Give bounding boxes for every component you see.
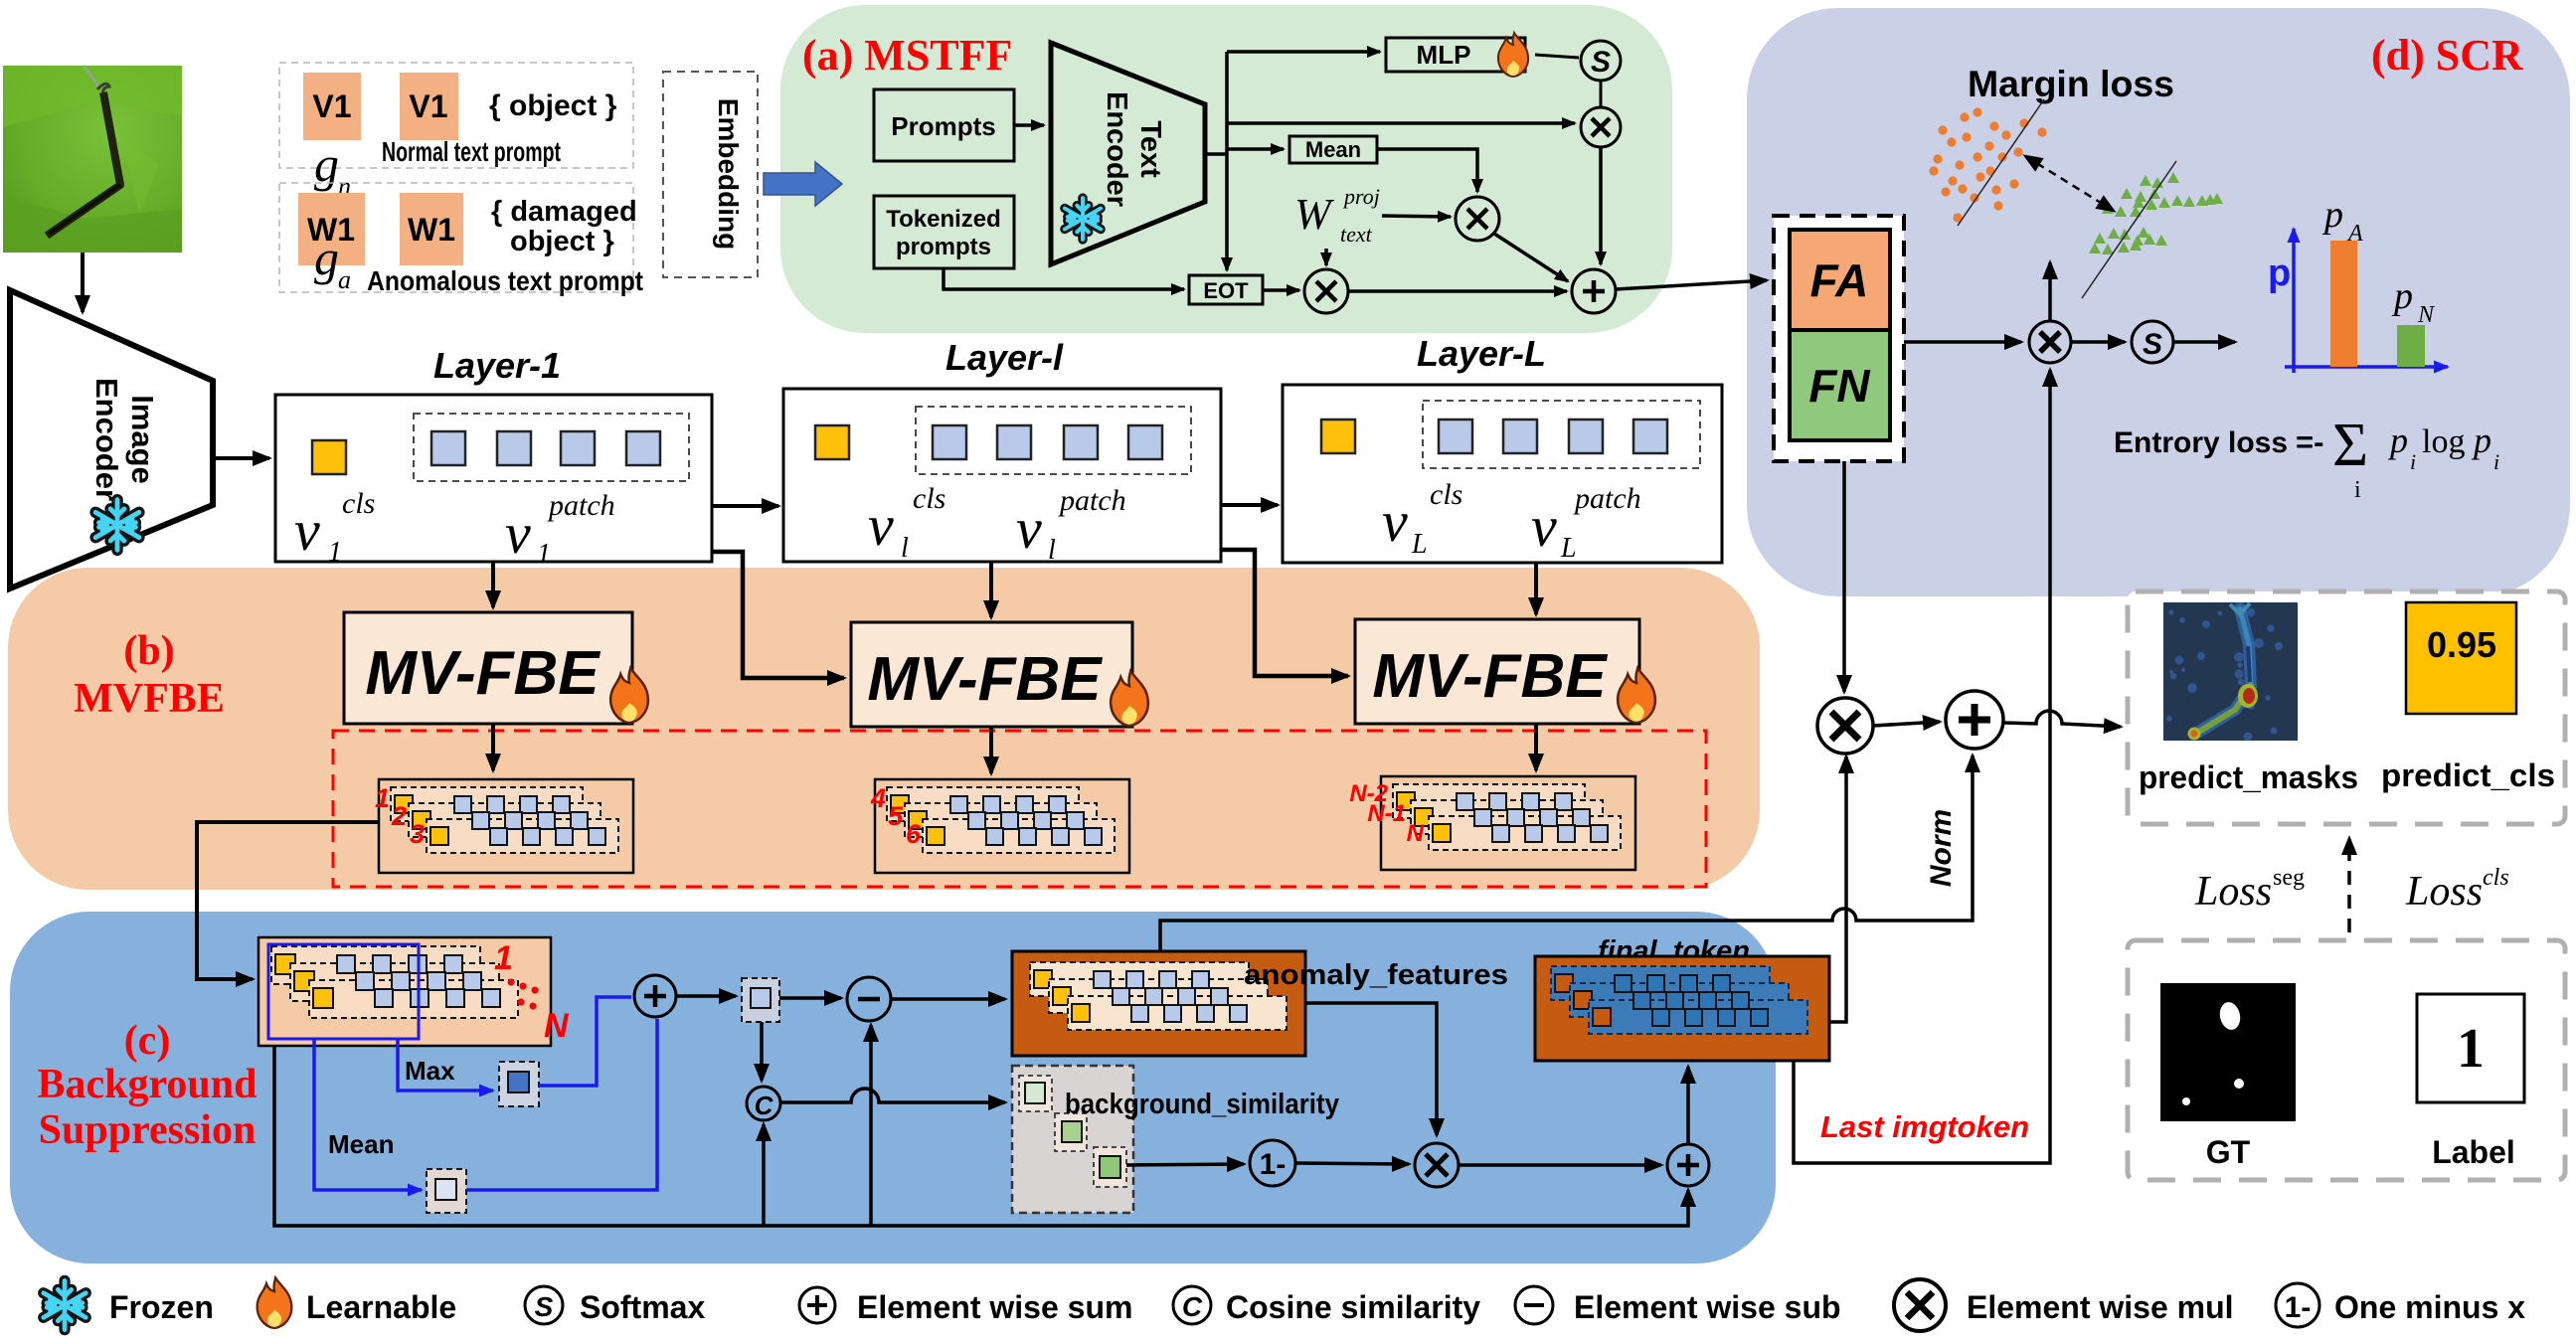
svg-text:(b): (b) <box>123 628 174 674</box>
svg-text:Layer-L: Layer-L <box>1417 333 1546 374</box>
svg-text:6: 6 <box>906 819 922 849</box>
svg-text:Σ: Σ <box>2332 412 2368 479</box>
svg-text:Anomalous text prompt: Anomalous text prompt <box>367 265 643 296</box>
svg-text:N-1: N-1 <box>1367 800 1406 827</box>
svg-text:1: 1 <box>494 939 513 977</box>
svg-text:v: v <box>1016 496 1042 561</box>
svg-text:Suppression: Suppression <box>39 1107 257 1153</box>
svg-text:Max: Max <box>405 1056 455 1086</box>
svg-text:Image: Image <box>125 395 160 484</box>
svg-text:g: g <box>314 230 339 285</box>
svg-text:patch: patch <box>547 489 615 522</box>
svg-text:cls: cls <box>913 482 945 515</box>
svg-text:p: p <box>2387 420 2408 460</box>
svg-text:anomaly_features: anomaly_features <box>1244 959 1508 991</box>
svg-text:W1: W1 <box>408 212 455 248</box>
svg-text:1: 1 <box>328 537 342 568</box>
svg-text:L: L <box>1411 529 1428 560</box>
svg-text:{ damaged: { damaged <box>491 196 637 228</box>
svg-text:patch: patch <box>1058 484 1126 517</box>
svg-text:(d) SCR: (d) SCR <box>2371 31 2524 80</box>
svg-text:background_similarity: background_similarity <box>1065 1089 1339 1120</box>
svg-text:1-: 1- <box>2285 1291 2312 1324</box>
svg-text:Encoder: Encoder <box>1101 91 1132 207</box>
svg-text:Element wise sub: Element wise sub <box>1574 1289 1841 1325</box>
svg-text:i: i <box>2410 449 2416 474</box>
svg-text:W: W <box>1294 190 1334 239</box>
svg-text:cls: cls <box>342 487 375 520</box>
svg-text:p: p <box>2268 252 2291 294</box>
svg-text:p: p <box>2391 275 2413 317</box>
svg-text:GT: GT <box>2206 1134 2251 1170</box>
svg-text:S: S <box>535 1291 554 1322</box>
svg-text:object }: object } <box>510 226 614 257</box>
svg-text:FN: FN <box>1808 360 1870 412</box>
svg-text:Cosine similarity: Cosine similarity <box>1226 1289 1480 1325</box>
svg-text:2: 2 <box>391 801 407 831</box>
svg-text:1: 1 <box>375 783 390 813</box>
svg-text:v: v <box>1531 494 1557 559</box>
svg-text:Loss: Loss <box>2405 869 2483 915</box>
svg-text:L: L <box>1560 533 1577 564</box>
svg-text:Softmax: Softmax <box>580 1289 705 1325</box>
svg-text:3: 3 <box>410 819 425 849</box>
svg-text:N: N <box>544 1007 570 1045</box>
svg-text:1-: 1- <box>1260 1148 1287 1181</box>
svg-text:p: p <box>2321 194 2343 236</box>
svg-text:Element wise mul: Element wise mul <box>1967 1289 2234 1325</box>
svg-text:predict_cls: predict_cls <box>2381 757 2555 793</box>
svg-text:One minus x: One minus x <box>2334 1289 2525 1325</box>
svg-text:=-: =- <box>2296 424 2323 459</box>
svg-text:seg: seg <box>2273 865 2305 891</box>
svg-text:Mean: Mean <box>328 1129 394 1159</box>
svg-text:Prompts: Prompts <box>891 111 995 141</box>
svg-text:A: A <box>2346 221 2363 247</box>
svg-text:Mean: Mean <box>1305 137 1361 162</box>
svg-text:V1: V1 <box>409 88 447 124</box>
svg-text:Frozen: Frozen <box>109 1289 214 1325</box>
svg-text:cls: cls <box>1430 478 1462 511</box>
svg-text:Last imgtoken: Last imgtoken <box>1820 1109 2029 1144</box>
svg-text:FA: FA <box>1810 254 1869 306</box>
svg-text:Text: Text <box>1134 120 1166 178</box>
svg-text:4: 4 <box>870 783 886 813</box>
svg-text:N: N <box>1407 820 1425 847</box>
svg-text:prompts: prompts <box>896 234 991 260</box>
svg-text:MV-FBE: MV-FBE <box>365 639 601 708</box>
svg-text:5: 5 <box>888 801 904 831</box>
svg-text:C: C <box>755 1091 774 1120</box>
svg-text:v: v <box>294 498 320 563</box>
svg-text:MLP: MLP <box>1417 40 1471 70</box>
svg-text:Label: Label <box>2432 1134 2515 1170</box>
svg-text:Tokenized: Tokenized <box>886 206 1001 233</box>
svg-text:i: i <box>2493 449 2499 474</box>
svg-text:Background: Background <box>38 1062 258 1107</box>
svg-text:l: l <box>901 533 909 564</box>
svg-text:v: v <box>868 493 894 558</box>
svg-text:v: v <box>505 501 531 566</box>
svg-text:patch: patch <box>1573 482 1641 515</box>
svg-text:C: C <box>1182 1291 1203 1322</box>
svg-text:(c): (c) <box>124 1018 171 1064</box>
svg-text:Margin loss: Margin loss <box>1968 64 2174 104</box>
svg-text:l: l <box>1048 535 1056 566</box>
svg-text:S: S <box>1591 46 1611 79</box>
svg-text:S: S <box>2143 328 2162 361</box>
svg-text:0.95: 0.95 <box>2427 624 2496 665</box>
svg-text:p: p <box>2471 420 2491 460</box>
svg-text:MVFBE: MVFBE <box>74 676 225 722</box>
svg-text:cls: cls <box>2483 865 2509 891</box>
svg-text:Encoder: Encoder <box>89 378 124 501</box>
svg-text:Element wise sum: Element wise sum <box>857 1289 1132 1325</box>
svg-text:log: log <box>2422 423 2465 460</box>
svg-text:MV-FBE: MV-FBE <box>867 645 1103 714</box>
svg-text:i: i <box>2354 477 2361 503</box>
svg-text:V1: V1 <box>312 88 351 124</box>
svg-text:proj: proj <box>1342 184 1380 209</box>
svg-text:a: a <box>338 265 351 294</box>
svg-text:Layer-1: Layer-1 <box>433 345 561 386</box>
svg-text:v: v <box>1382 489 1408 554</box>
svg-text:Normal text prompt: Normal text prompt <box>382 136 561 167</box>
svg-text:N: N <box>2417 302 2436 328</box>
svg-text:predict_masks: predict_masks <box>2139 759 2358 795</box>
svg-text:Loss: Loss <box>2194 869 2272 915</box>
svg-text:Learnable: Learnable <box>306 1289 456 1325</box>
svg-text:{ object }: { object } <box>489 89 617 122</box>
svg-text:Norm: Norm <box>1925 809 1958 887</box>
svg-text:Entrory loss: Entrory loss <box>2114 426 2288 459</box>
svg-text:EOT: EOT <box>1203 278 1249 303</box>
svg-text:1: 1 <box>537 539 551 570</box>
svg-text:1: 1 <box>2457 1018 2485 1080</box>
svg-text:Embedding: Embedding <box>713 98 744 250</box>
svg-text:(a) MSTFF: (a) MSTFF <box>802 31 1012 80</box>
svg-text:Layer-l: Layer-l <box>945 337 1064 378</box>
svg-text:MV-FBE: MV-FBE <box>1372 642 1608 711</box>
svg-text:text: text <box>1340 222 1373 247</box>
